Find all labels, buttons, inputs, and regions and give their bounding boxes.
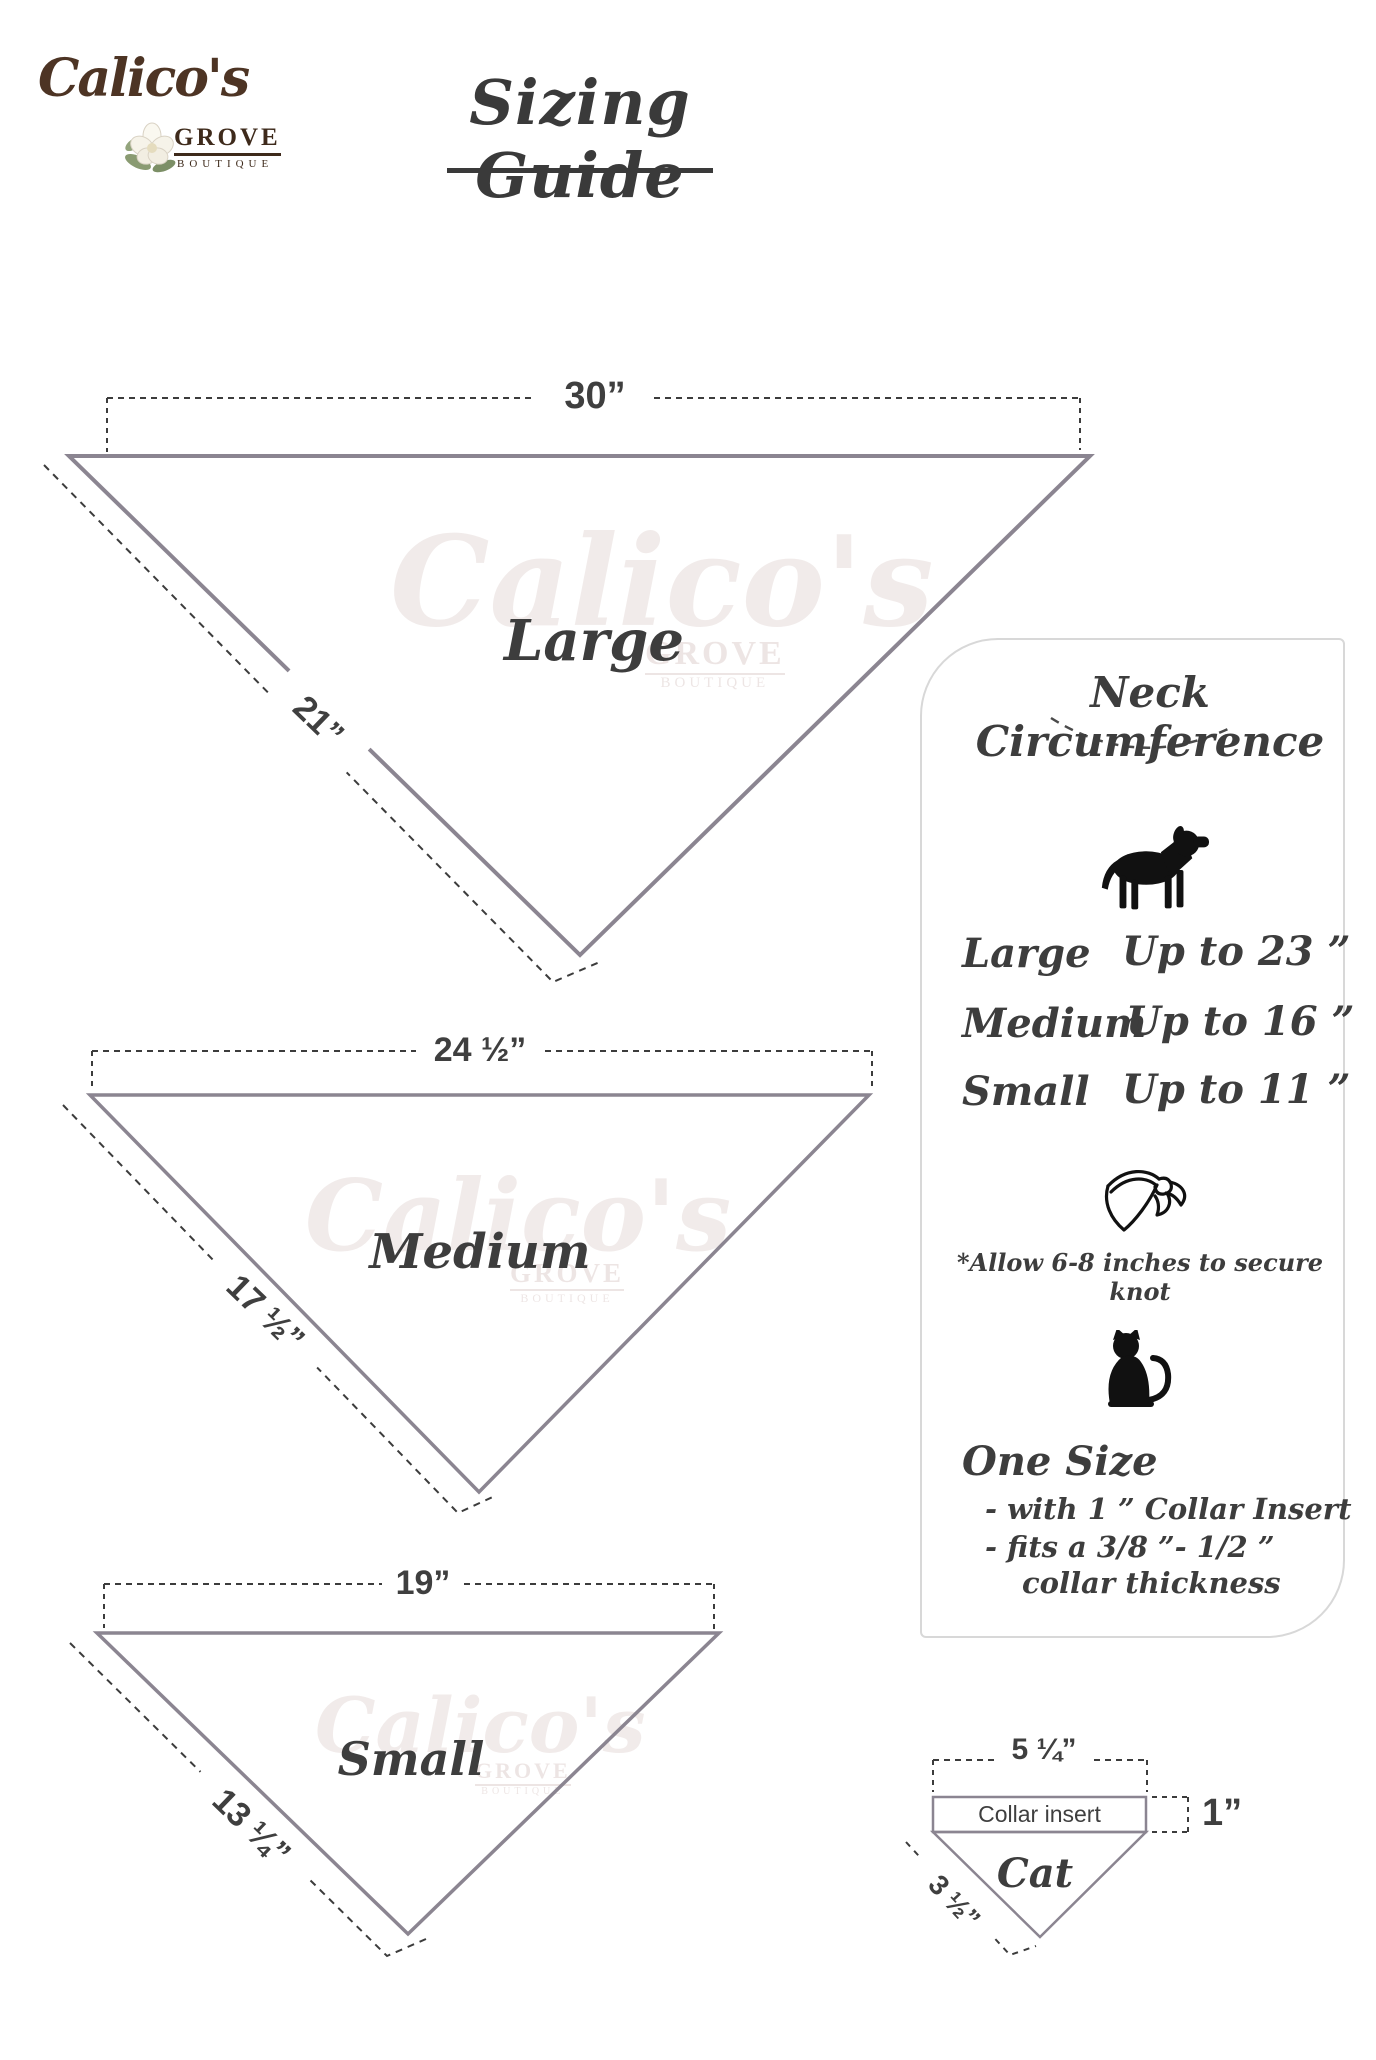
row-small-size: Small: [962, 1068, 1090, 1115]
small-top-measure: 19”: [358, 1564, 488, 1603]
cat-silhouette-icon: [1100, 1330, 1186, 1412]
cat-height-measure: 1”: [1202, 1792, 1242, 1835]
medium-size-label: Medium: [330, 1224, 630, 1280]
medium-top-measure: 24 ½”: [405, 1031, 555, 1070]
cat-size-label: Cat: [960, 1850, 1110, 1897]
row-medium-size: Medium: [962, 1000, 1146, 1047]
sizing-guide-page: Calico's GROVE BOUTIQUE Calico's GROVE B…: [0, 0, 1376, 2060]
row-small-value: Up to 11 ”: [1122, 1066, 1350, 1113]
row-large-value: Up to 23 ”: [1122, 928, 1350, 975]
row-large-size: Large: [962, 930, 1091, 977]
large-top-measure: 30”: [530, 375, 660, 418]
one-size-title: One Size: [962, 1438, 1158, 1485]
cat-top-measure: 5 ¼”: [979, 1733, 1109, 1767]
one-size-point-1: - with 1 ” Collar Insert: [985, 1492, 1351, 1526]
one-size-point-2: - fits a 3/8 ”- 1/2 ”: [985, 1530, 1275, 1564]
large-size-label: Large: [444, 608, 744, 674]
cat-height-dashed-bracket: [1152, 1797, 1188, 1832]
medium-bandana-outline: [90, 1095, 869, 1492]
row-medium-value: Up to 16 ”: [1126, 998, 1354, 1045]
bandana-knot-icon: [1096, 1160, 1204, 1246]
one-size-point-3: collar thickness: [1022, 1566, 1281, 1600]
knot-note: *Allow 6-8 inches to secure knot: [930, 1248, 1350, 1306]
small-size-label: Small: [261, 1732, 561, 1786]
neck-circumference-panel: [920, 638, 1345, 1638]
dog-silhouette-icon: [1092, 822, 1210, 917]
panel-title: Neck Circumference: [945, 668, 1355, 766]
cat-collar-insert-label: Collar insert: [933, 1797, 1146, 1832]
